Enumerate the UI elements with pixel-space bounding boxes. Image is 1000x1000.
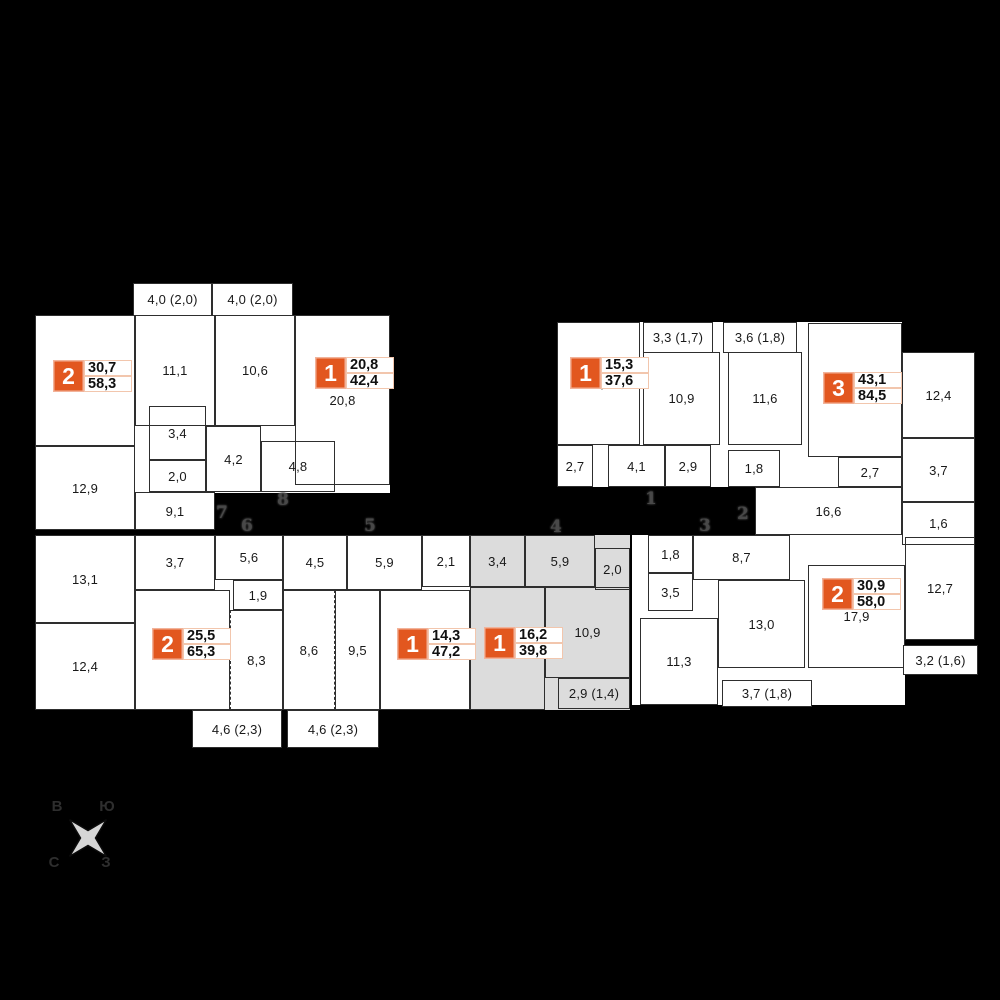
room-area-label: 13,1 [72, 572, 98, 587]
room: 16,6 [755, 487, 902, 535]
balcony-area-label: 4,6 (2,3) [308, 722, 358, 737]
room-area-label: 3,4 [488, 554, 507, 569]
room: 12,4 [35, 623, 135, 710]
apartment-areas: 25,565,3 [183, 628, 231, 660]
total-area-value: 39,8 [515, 643, 563, 659]
balcony-area-label: 3,7 (1,8) [742, 686, 792, 701]
room: 2,7 [557, 445, 593, 487]
total-area-value: 47,2 [428, 644, 476, 660]
total-area-value: 65,3 [183, 644, 231, 660]
apartment-rooms-count: 2 [53, 360, 84, 392]
room: 3,7 [135, 535, 215, 590]
room-area-label: 1,6 [929, 516, 948, 531]
room-area-label: 2,0 [168, 469, 187, 484]
living-area-value: 20,8 [346, 357, 394, 373]
room-area-label: 12,4 [72, 659, 98, 674]
living-area-value: 30,7 [84, 360, 132, 376]
room: 9,5 [335, 590, 380, 710]
balcony-area-label: 2,9 (1,4) [569, 686, 619, 701]
apartment-badge[interactable]: 120,842,4 [315, 357, 394, 389]
room-area-label: 10,9 [668, 391, 694, 406]
room-area-label: 2,7 [566, 459, 585, 474]
room: 12,4 [902, 352, 975, 438]
apartment-position-number: 4 [550, 517, 562, 537]
balcony-area-label: 3,3 (1,7) [653, 330, 703, 345]
compass-star-icon [70, 820, 107, 857]
room: 1,9 [233, 580, 283, 610]
compass-rose: В Ю С З [44, 791, 154, 886]
compass-label-east: В [52, 798, 63, 815]
apartment-position-number: 2 [737, 504, 749, 524]
room: 3,5 [648, 573, 693, 611]
apartment-badge[interactable]: 116,239,8 [484, 627, 563, 659]
room: 4,5 [283, 535, 347, 590]
room-area-label: 3,7 [166, 555, 185, 570]
room-area-label: 11,3 [666, 654, 691, 669]
room-area-label: 20,8 [329, 393, 355, 408]
apartment-badge[interactable]: 230,958,0 [822, 578, 901, 610]
room: 1,8 [648, 535, 693, 573]
room-area-label: 12,4 [925, 388, 951, 403]
room: 2,1 [422, 535, 470, 587]
apartment-badge[interactable]: 225,565,3 [152, 628, 231, 660]
balcony: 4,6 (2,3) [192, 710, 282, 748]
balcony: 4,0 (2,0) [212, 283, 293, 316]
room-area-label: 2,1 [437, 554, 456, 569]
apartment-areas: 30,958,0 [853, 578, 901, 610]
room-area-label: 2,7 [861, 465, 880, 480]
room: 8,6 [283, 590, 335, 710]
apartment-badge[interactable]: 114,347,2 [397, 628, 476, 660]
room: 3,4 [149, 406, 206, 460]
floor-plan: В Ю С З 17,812,911,13,42,09,14,210,620,8… [0, 0, 1000, 1000]
balcony: 4,6 (2,3) [287, 710, 379, 748]
apartment-areas: 43,184,5 [854, 372, 902, 404]
room: 3,4 [470, 535, 525, 587]
room-area-label: 13,0 [748, 617, 774, 632]
room-area-label: 11,1 [162, 363, 187, 378]
apartment-position-number: 5 [364, 516, 376, 536]
room: 2,0 [149, 460, 206, 492]
apartment-rooms-count: 1 [315, 357, 346, 389]
room-area-label: 16,6 [815, 504, 841, 519]
room: 4,8 [261, 441, 335, 492]
balcony-area-label: 4,0 (2,0) [147, 292, 197, 307]
room: 12,7 [905, 537, 975, 640]
room: 2,9 [665, 445, 711, 487]
apartment-position-number: 6 [241, 516, 253, 536]
apartment-rooms-count: 1 [570, 357, 601, 389]
room-area-label: 11,6 [752, 391, 777, 406]
apartment-areas: 30,758,3 [84, 360, 132, 392]
living-area-value: 16,2 [515, 627, 563, 643]
apartment-badge[interactable]: 115,337,6 [570, 357, 649, 389]
living-area-value: 25,5 [183, 628, 231, 644]
room: 5,6 [215, 535, 283, 580]
living-area-value: 14,3 [428, 628, 476, 644]
balcony: 2,9 (1,4) [558, 678, 630, 709]
room-area-label: 4,8 [289, 459, 308, 474]
room: 8,3 [230, 610, 283, 710]
room-area-label: 1,8 [745, 461, 764, 476]
living-area-value: 30,9 [853, 578, 901, 594]
room: 4,1 [608, 445, 665, 487]
total-area-value: 42,4 [346, 373, 394, 389]
room-area-label: 5,9 [375, 555, 394, 570]
room-area-label: 3,7 [929, 463, 948, 478]
room-area-label: 8,7 [732, 550, 751, 565]
room-area-label: 8,3 [247, 653, 266, 668]
compass-label-north: С [49, 854, 60, 871]
total-area-value: 84,5 [854, 388, 902, 404]
balcony: 4,0 (2,0) [133, 283, 212, 316]
room: 1,8 [728, 450, 780, 487]
apartment-areas: 20,842,4 [346, 357, 394, 389]
apartment-rooms-count: 1 [484, 627, 515, 659]
room: 5,9 [347, 535, 422, 590]
room-area-label: 17,9 [843, 609, 869, 624]
room-area-label: 8,6 [300, 643, 319, 658]
apartment-badge[interactable]: 230,758,3 [53, 360, 132, 392]
room: 13,0 [718, 580, 805, 668]
compass-label-south: Ю [99, 798, 114, 815]
room-area-label: 1,9 [249, 588, 268, 603]
room: 3,7 [902, 438, 975, 502]
balcony: 3,7 (1,8) [722, 680, 812, 707]
room-area-label: 2,9 [679, 459, 698, 474]
room-area-label: 2,0 [603, 562, 622, 577]
apartment-position-number: 1 [645, 489, 657, 509]
room: 11,3 [640, 618, 718, 705]
compass-label-west: З [101, 854, 110, 871]
room-area-label: 4,5 [306, 555, 325, 570]
balcony: 3,2 (1,6) [903, 645, 978, 675]
apartment-areas: 14,347,2 [428, 628, 476, 660]
room: 9,1 [135, 492, 215, 530]
apartment-rooms-count: 2 [152, 628, 183, 660]
apartment-areas: 16,239,8 [515, 627, 563, 659]
balcony-area-label: 4,0 (2,0) [227, 292, 277, 307]
apartment-areas: 15,337,6 [601, 357, 649, 389]
room: 10,6 [215, 315, 295, 426]
room-area-label: 4,2 [224, 452, 243, 467]
room-area-label: 4,1 [627, 459, 646, 474]
room: 11,6 [728, 352, 802, 445]
room-area-label: 5,6 [240, 550, 259, 565]
room-area-label: 10,6 [242, 363, 268, 378]
balcony: 3,6 (1,8) [723, 322, 797, 353]
balcony: 3,3 (1,7) [643, 322, 713, 353]
living-area-value: 43,1 [854, 372, 902, 388]
apartment-rooms-count: 2 [822, 578, 853, 610]
apartment-rooms-count: 1 [397, 628, 428, 660]
room: 13,1 [35, 535, 135, 623]
apartment-position-number: 3 [699, 516, 711, 536]
balcony-area-label: 4,6 (2,3) [212, 722, 262, 737]
total-area-value: 37,6 [601, 373, 649, 389]
room-area-label: 10,9 [574, 625, 600, 640]
apartment-rooms-count: 3 [823, 372, 854, 404]
room-area-label: 5,9 [551, 554, 570, 569]
room-area-label: 12,9 [72, 481, 98, 496]
room-area-label: 3,4 [168, 426, 187, 441]
room-area-label: 1,8 [661, 547, 680, 562]
living-area-value: 15,3 [601, 357, 649, 373]
room-area-label: 3,5 [661, 585, 680, 600]
room-area-label: 9,5 [348, 643, 367, 658]
room: 2,0 [595, 548, 630, 590]
room: 12,9 [35, 446, 135, 530]
apartment-position-number: 8 [277, 490, 289, 510]
total-area-value: 58,0 [853, 594, 901, 610]
room: 5,9 [525, 535, 595, 587]
apartment-position-number: 7 [216, 503, 228, 523]
room-area-label: 12,7 [927, 581, 953, 596]
total-area-value: 58,3 [84, 376, 132, 392]
balcony-area-label: 3,6 (1,8) [735, 330, 785, 345]
room: 4,2 [206, 426, 261, 492]
room-area-label: 9,1 [166, 504, 185, 519]
apartment-badge[interactable]: 343,184,5 [823, 372, 902, 404]
room: 10,9 [643, 352, 720, 445]
room: 2,7 [838, 457, 902, 487]
balcony-area-label: 3,2 (1,6) [915, 653, 965, 668]
room: 8,7 [693, 535, 790, 580]
